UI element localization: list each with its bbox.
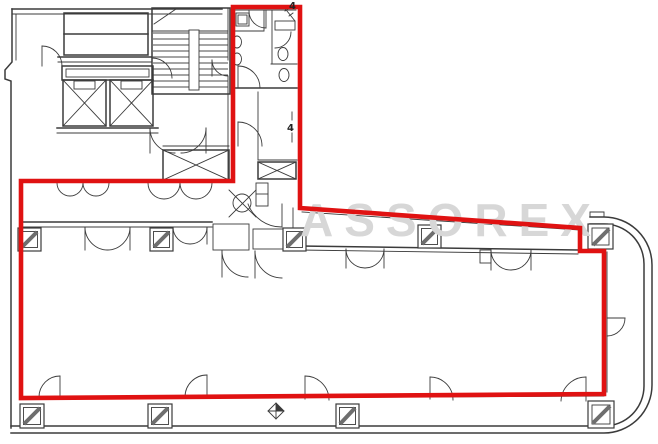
unit-entry — [213, 183, 293, 278]
shaft-box — [163, 146, 229, 180]
elevator-bank — [57, 66, 158, 133]
benchmark-symbol — [268, 403, 284, 419]
column — [336, 404, 359, 428]
column — [150, 228, 173, 251]
floor-plan-page: ASSOREX 4 4 — [0, 0, 658, 444]
grid-marker-mid: 4 — [287, 123, 294, 134]
stairwell-north — [58, 13, 152, 62]
lavatory-block — [232, 6, 297, 179]
column — [588, 401, 614, 428]
pipe-space — [256, 183, 268, 206]
toilet — [279, 69, 289, 82]
floor-plan-drawing: ASSOREX 4 4 — [0, 0, 658, 444]
stairwell-east — [152, 8, 230, 94]
east-wall — [607, 252, 625, 392]
column — [148, 404, 172, 428]
core-door-arc — [42, 46, 62, 66]
entrance-mat — [253, 229, 283, 249]
grid-marker-top: 4 — [289, 1, 296, 12]
toilet — [278, 48, 288, 61]
column — [20, 404, 44, 428]
